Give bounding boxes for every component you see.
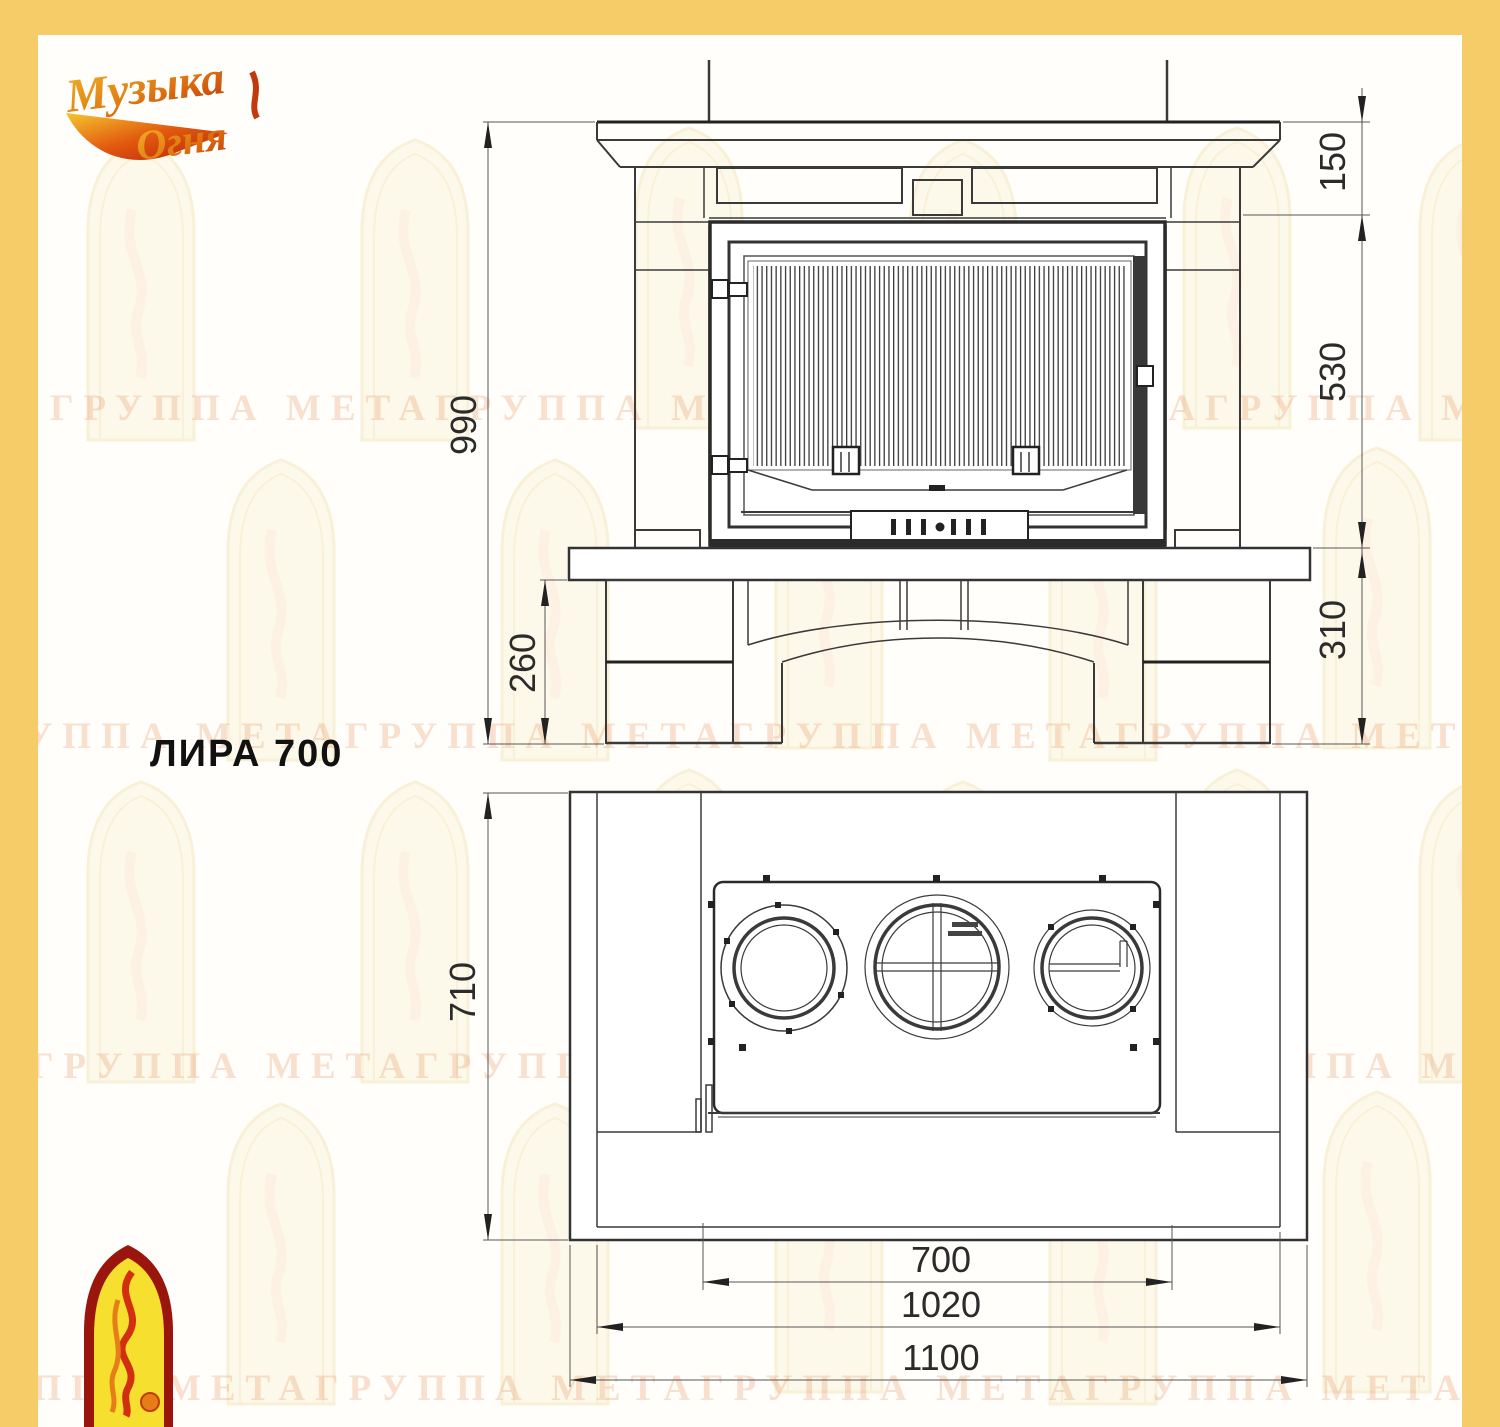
fireplace-technical-drawing: ГРУППА МЕТАГРУППА МЕТАГРУППА МЕТАГРУППА …: [0, 0, 1500, 1427]
bench-slab: [569, 548, 1310, 580]
door-latch: [1137, 366, 1153, 386]
dim-label-700: 700: [911, 1239, 971, 1280]
logo-word-1: Музыка: [62, 52, 227, 123]
door-handle: [929, 485, 945, 491]
plan-view-drawing: [570, 792, 1307, 1240]
dim-label-310: 310: [1312, 600, 1353, 660]
dim-label-1100: 1100: [902, 1337, 979, 1378]
page-frame-right: [1462, 0, 1500, 1427]
dim-label-150: 150: [1312, 132, 1353, 192]
dim-label-990: 990: [443, 395, 484, 455]
dim-label-260: 260: [502, 633, 543, 693]
dim-label-710: 710: [442, 962, 483, 1022]
page-frame-top: [0, 0, 1500, 35]
dim-label-1020: 1020: [901, 1284, 981, 1325]
glass-door-hatching: [753, 266, 1126, 466]
chimney-lines: [709, 60, 1167, 122]
drawing-page: ГРУППА МЕТАГРУППА МЕТАГРУППА МЕТАГРУППА …: [0, 0, 1500, 1427]
watermark-text-row: ГРУППА МЕТАГРУППА МЕТАГРУППА МЕТАГРУППА …: [0, 1368, 1470, 1409]
dim-label-530: 530: [1312, 342, 1353, 402]
brand-logo: Музыка Огня: [62, 52, 257, 170]
page-title: ЛИРА 700: [150, 733, 343, 775]
meta-emblem: [84, 1245, 173, 1427]
logo-word-2: Огня: [134, 113, 230, 170]
page-frame-left: [0, 0, 38, 1427]
